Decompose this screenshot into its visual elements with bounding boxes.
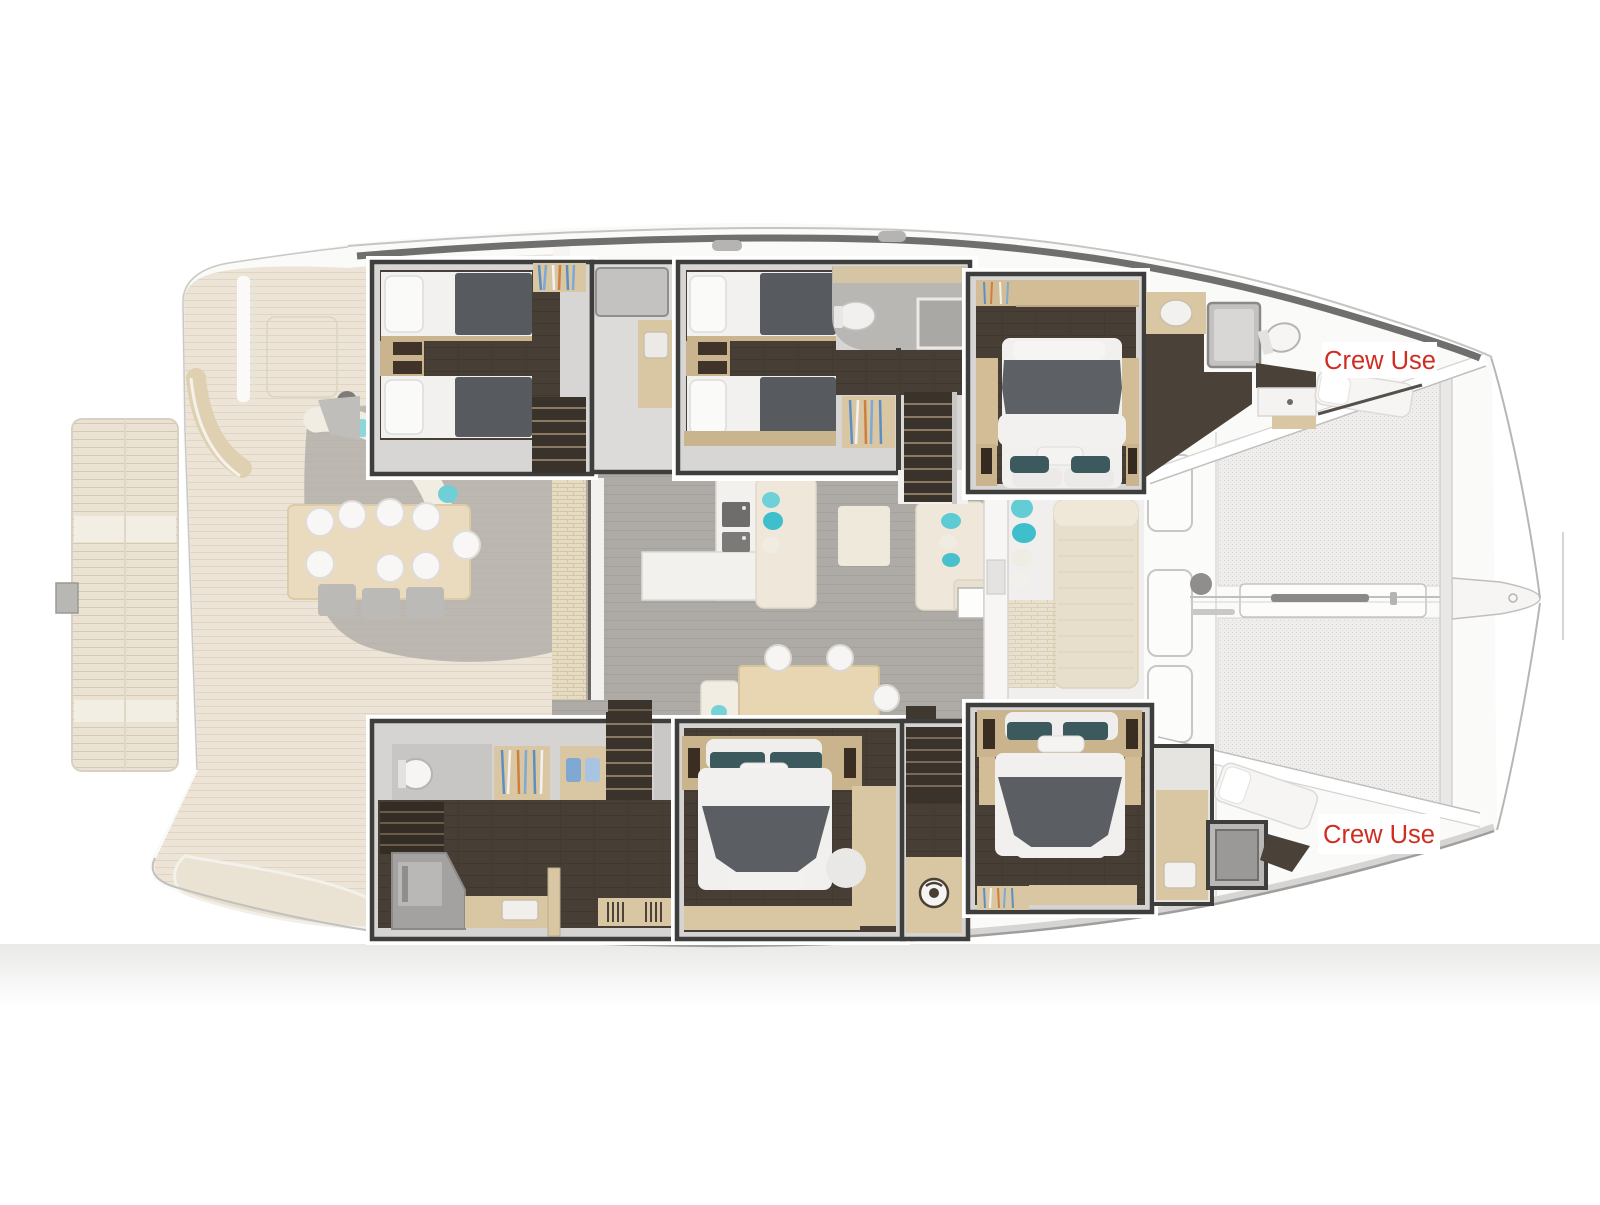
svg-text:Crew Use: Crew Use [1324,347,1436,375]
svg-text:Crew Use: Crew Use [1323,821,1435,849]
